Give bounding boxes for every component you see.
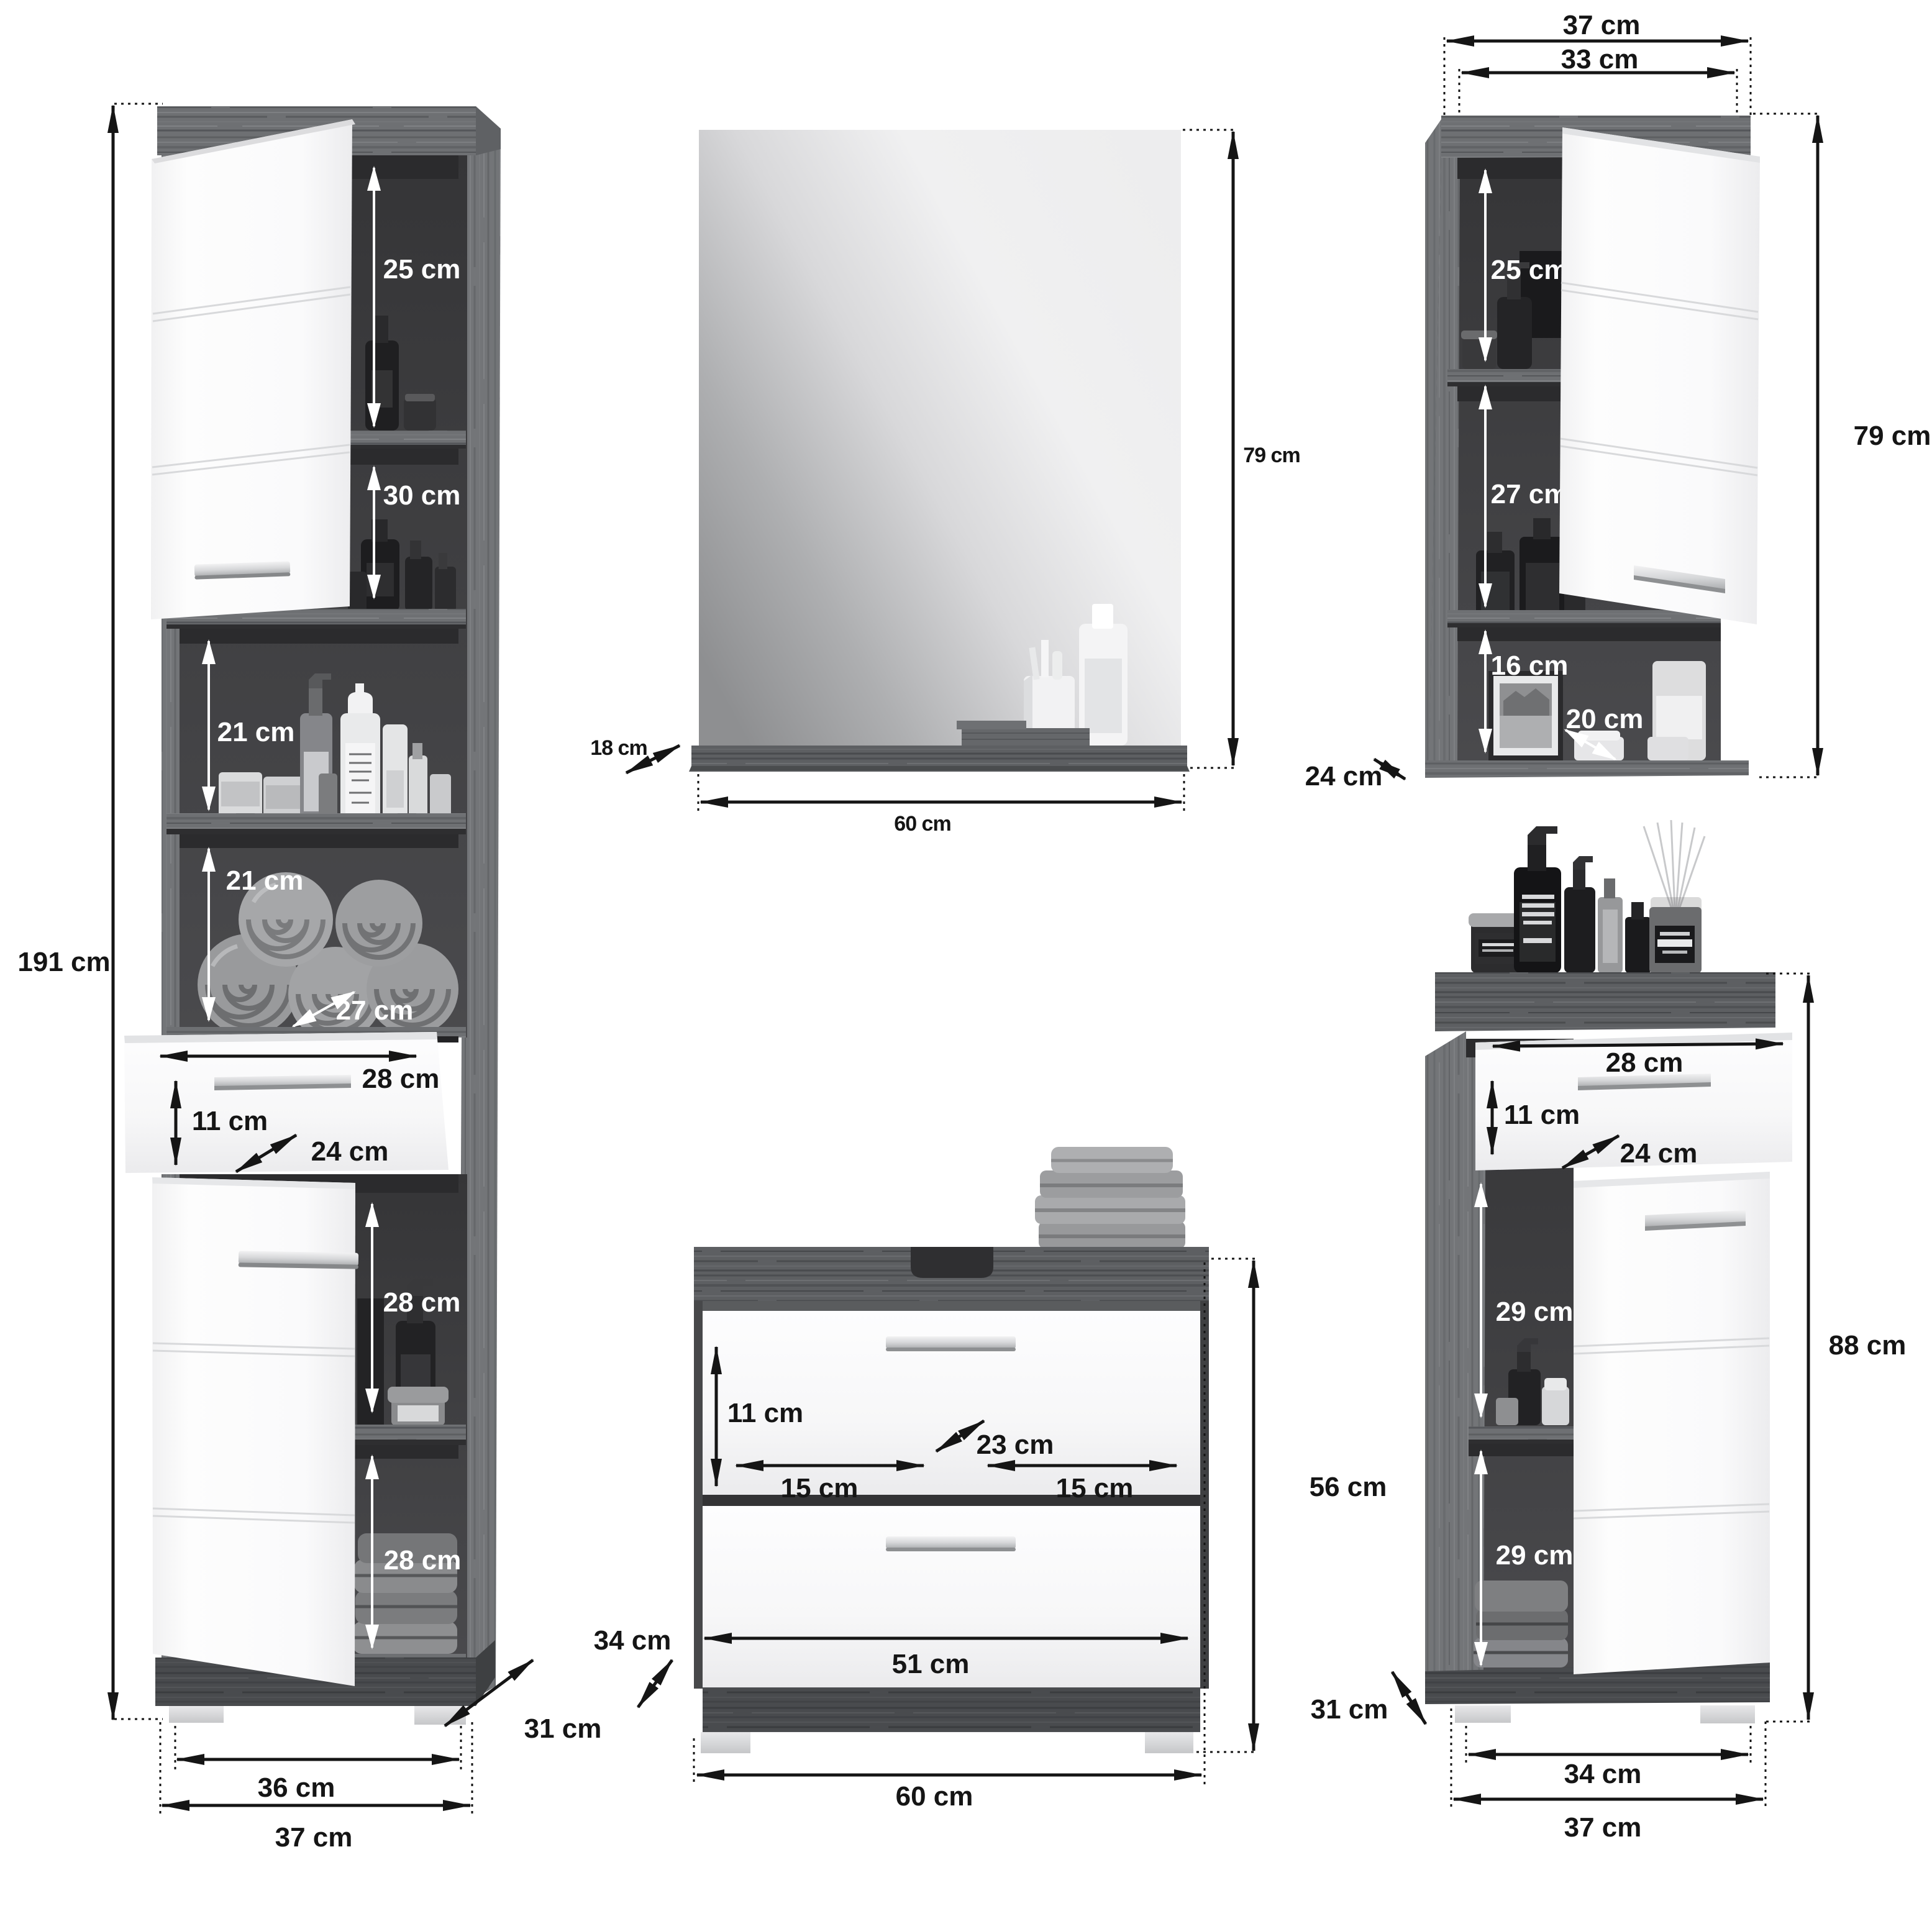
svg-text:24 cm: 24 cm bbox=[1620, 1138, 1698, 1169]
svg-text:16 cm: 16 cm bbox=[1491, 650, 1569, 681]
svg-text:29 cm: 29 cm bbox=[1496, 1297, 1574, 1327]
svg-text:28 cm: 28 cm bbox=[362, 1064, 440, 1094]
svg-text:29 cm: 29 cm bbox=[1496, 1540, 1574, 1571]
svg-text:31 cm: 31 cm bbox=[1311, 1694, 1388, 1725]
svg-text:24 cm: 24 cm bbox=[311, 1136, 389, 1167]
svg-text:20 cm: 20 cm bbox=[1566, 704, 1644, 734]
svg-text:24 cm: 24 cm bbox=[1305, 761, 1383, 791]
svg-text:88 cm: 88 cm bbox=[1829, 1330, 1907, 1361]
svg-text:33 cm: 33 cm bbox=[1561, 44, 1639, 75]
svg-text:28 cm: 28 cm bbox=[384, 1545, 462, 1576]
svg-text:60 cm: 60 cm bbox=[896, 1781, 973, 1812]
svg-text:191 cm: 191 cm bbox=[17, 947, 110, 977]
svg-text:25 cm: 25 cm bbox=[1491, 255, 1569, 285]
svg-text:37 cm: 37 cm bbox=[1564, 1812, 1642, 1843]
svg-text:25 cm: 25 cm bbox=[383, 254, 461, 285]
svg-text:37 cm: 37 cm bbox=[1563, 10, 1641, 40]
svg-text:11 cm: 11 cm bbox=[192, 1106, 268, 1136]
svg-text:60 cm: 60 cm bbox=[894, 812, 950, 836]
svg-text:21 cm: 21 cm bbox=[226, 865, 304, 896]
svg-text:21 cm: 21 cm bbox=[217, 717, 295, 747]
svg-text:37 cm: 37 cm bbox=[275, 1822, 353, 1853]
svg-text:79 cm: 79 cm bbox=[1243, 444, 1300, 467]
svg-text:79 cm: 79 cm bbox=[1854, 421, 1931, 451]
svg-text:28 cm: 28 cm bbox=[383, 1287, 461, 1318]
svg-text:34 cm: 34 cm bbox=[1564, 1759, 1642, 1789]
svg-text:31 cm: 31 cm bbox=[524, 1713, 602, 1744]
svg-text:27 cm: 27 cm bbox=[1491, 479, 1569, 509]
svg-text:11 cm: 11 cm bbox=[1504, 1100, 1580, 1130]
svg-text:30 cm: 30 cm bbox=[383, 480, 461, 511]
svg-text:34 cm: 34 cm bbox=[594, 1625, 672, 1656]
svg-text:27 cm: 27 cm bbox=[336, 995, 414, 1026]
svg-text:15 cm: 15 cm bbox=[781, 1473, 859, 1503]
svg-text:51 cm: 51 cm bbox=[892, 1649, 970, 1679]
svg-text:23 cm: 23 cm bbox=[977, 1430, 1054, 1460]
svg-text:56 cm: 56 cm bbox=[1310, 1472, 1387, 1502]
svg-text:11 cm: 11 cm bbox=[727, 1398, 803, 1428]
svg-text:36 cm: 36 cm bbox=[258, 1772, 335, 1803]
svg-text:15 cm: 15 cm bbox=[1056, 1473, 1134, 1503]
svg-text:18 cm: 18 cm bbox=[590, 736, 647, 760]
svg-text:28 cm: 28 cm bbox=[1606, 1047, 1684, 1078]
